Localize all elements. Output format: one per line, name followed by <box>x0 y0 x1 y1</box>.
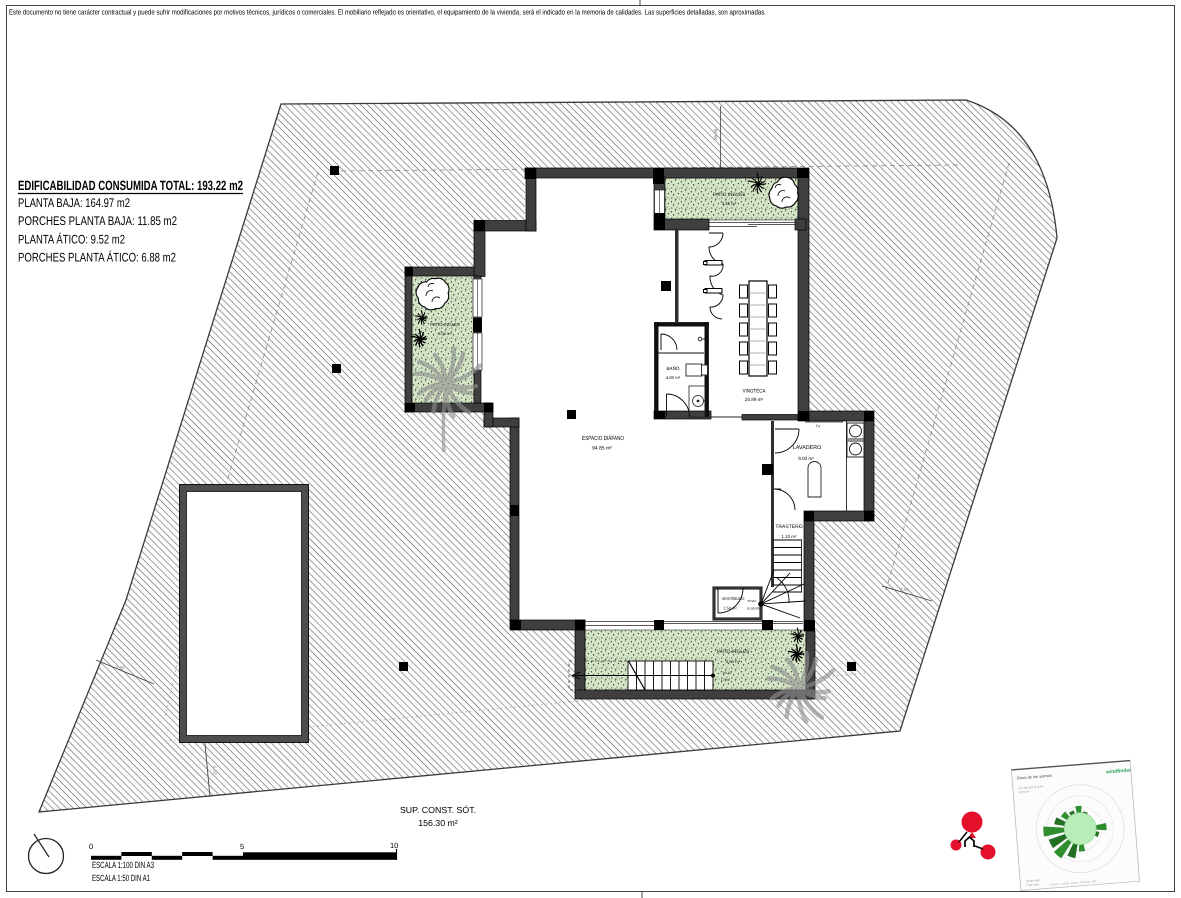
svg-text:PORCHES PLANTA ÁTICO: 6.88 m2: PORCHES PLANTA ÁTICO: 6.88 m2 <box>18 251 176 265</box>
svg-text:PLANTA ÁTICO: 9.52 m2: PLANTA ÁTICO: 9.52 m2 <box>18 233 125 247</box>
svg-text:6.06: 6.06 <box>116 665 125 670</box>
svg-text:5: 5 <box>240 842 244 851</box>
svg-text:PLANTA BAJA: 164.97 m2: PLANTA BAJA: 164.97 m2 <box>18 196 130 210</box>
svg-text:5.10: 5.10 <box>212 766 218 776</box>
svg-text:0: 0 <box>89 842 93 851</box>
svg-text:16.50X28: 16.50X28 <box>747 607 760 611</box>
svg-text:94.85 m²: 94.85 m² <box>592 446 612 452</box>
svg-text:PORCHES PLANTA BAJA: 11.85 m2: PORCHES PLANTA BAJA: 11.85 m2 <box>18 214 177 228</box>
svg-text:EDIFICABILIDAD CONSUMIDA TOTAL: EDIFICABILIDAD CONSUMIDA TOTAL: 193.22 m… <box>18 178 243 193</box>
svg-text:TV: TV <box>816 425 821 429</box>
svg-text:4.63 m²: 4.63 m² <box>726 659 741 664</box>
svg-text:BAÑO: BAÑO <box>666 365 679 371</box>
svg-text:3.06 m²: 3.06 m² <box>438 331 452 336</box>
svg-text:ESCALA 1:100 DIN A3: ESCALA 1:100 DIN A3 <box>92 860 154 870</box>
svg-text:BAJA: BAJA <box>723 671 732 675</box>
svg-text:4.06: 4.06 <box>900 587 909 592</box>
svg-text:VINOTECA: VINOTECA <box>743 389 766 395</box>
svg-text:20.89 m²: 20.89 m² <box>745 397 764 402</box>
svg-text:10: 10 <box>390 841 398 850</box>
svg-text:ESPACIO DIÁFANO: ESPACIO DIÁFANO <box>582 434 624 442</box>
svg-text:ESCALA 1:50 DIN A1: ESCALA 1:50 DIN A1 <box>92 873 150 883</box>
svg-text:3.45 m²: 3.45 m² <box>722 201 737 206</box>
svg-text:S/HAC: S/HAC <box>747 599 757 603</box>
svg-text:1.10 m²: 1.10 m² <box>782 534 797 539</box>
svg-text:TRASTERO: TRASTERO <box>775 524 802 530</box>
svg-text:SUP. CONST. SÓT.: SUP. CONST. SÓT. <box>400 805 476 815</box>
svg-text:9.00 m²: 9.00 m² <box>798 456 814 461</box>
svg-text:PATIO INGLÉS: PATIO INGLÉS <box>717 648 750 655</box>
svg-text:PATIO INGLÉS: PATIO INGLÉS <box>430 322 460 327</box>
svg-text:36.96: 36.96 <box>713 128 718 140</box>
svg-text:LAVADERO: LAVADERO <box>793 445 822 451</box>
svg-text:VESTÍBULO: VESTÍBULO <box>722 596 745 601</box>
svg-text:4.80 m²: 4.80 m² <box>666 375 681 380</box>
svg-text:17x18: 17x18 <box>721 678 730 682</box>
svg-text:156.30 m²: 156.30 m² <box>418 818 458 828</box>
svg-text:Este documento no tiene caráct: Este documento no tiene carácter contrac… <box>9 8 766 17</box>
svg-text:PATIO INGLÉS: PATIO INGLÉS <box>713 191 746 198</box>
svg-text:1.50 m²: 1.50 m² <box>723 606 737 611</box>
